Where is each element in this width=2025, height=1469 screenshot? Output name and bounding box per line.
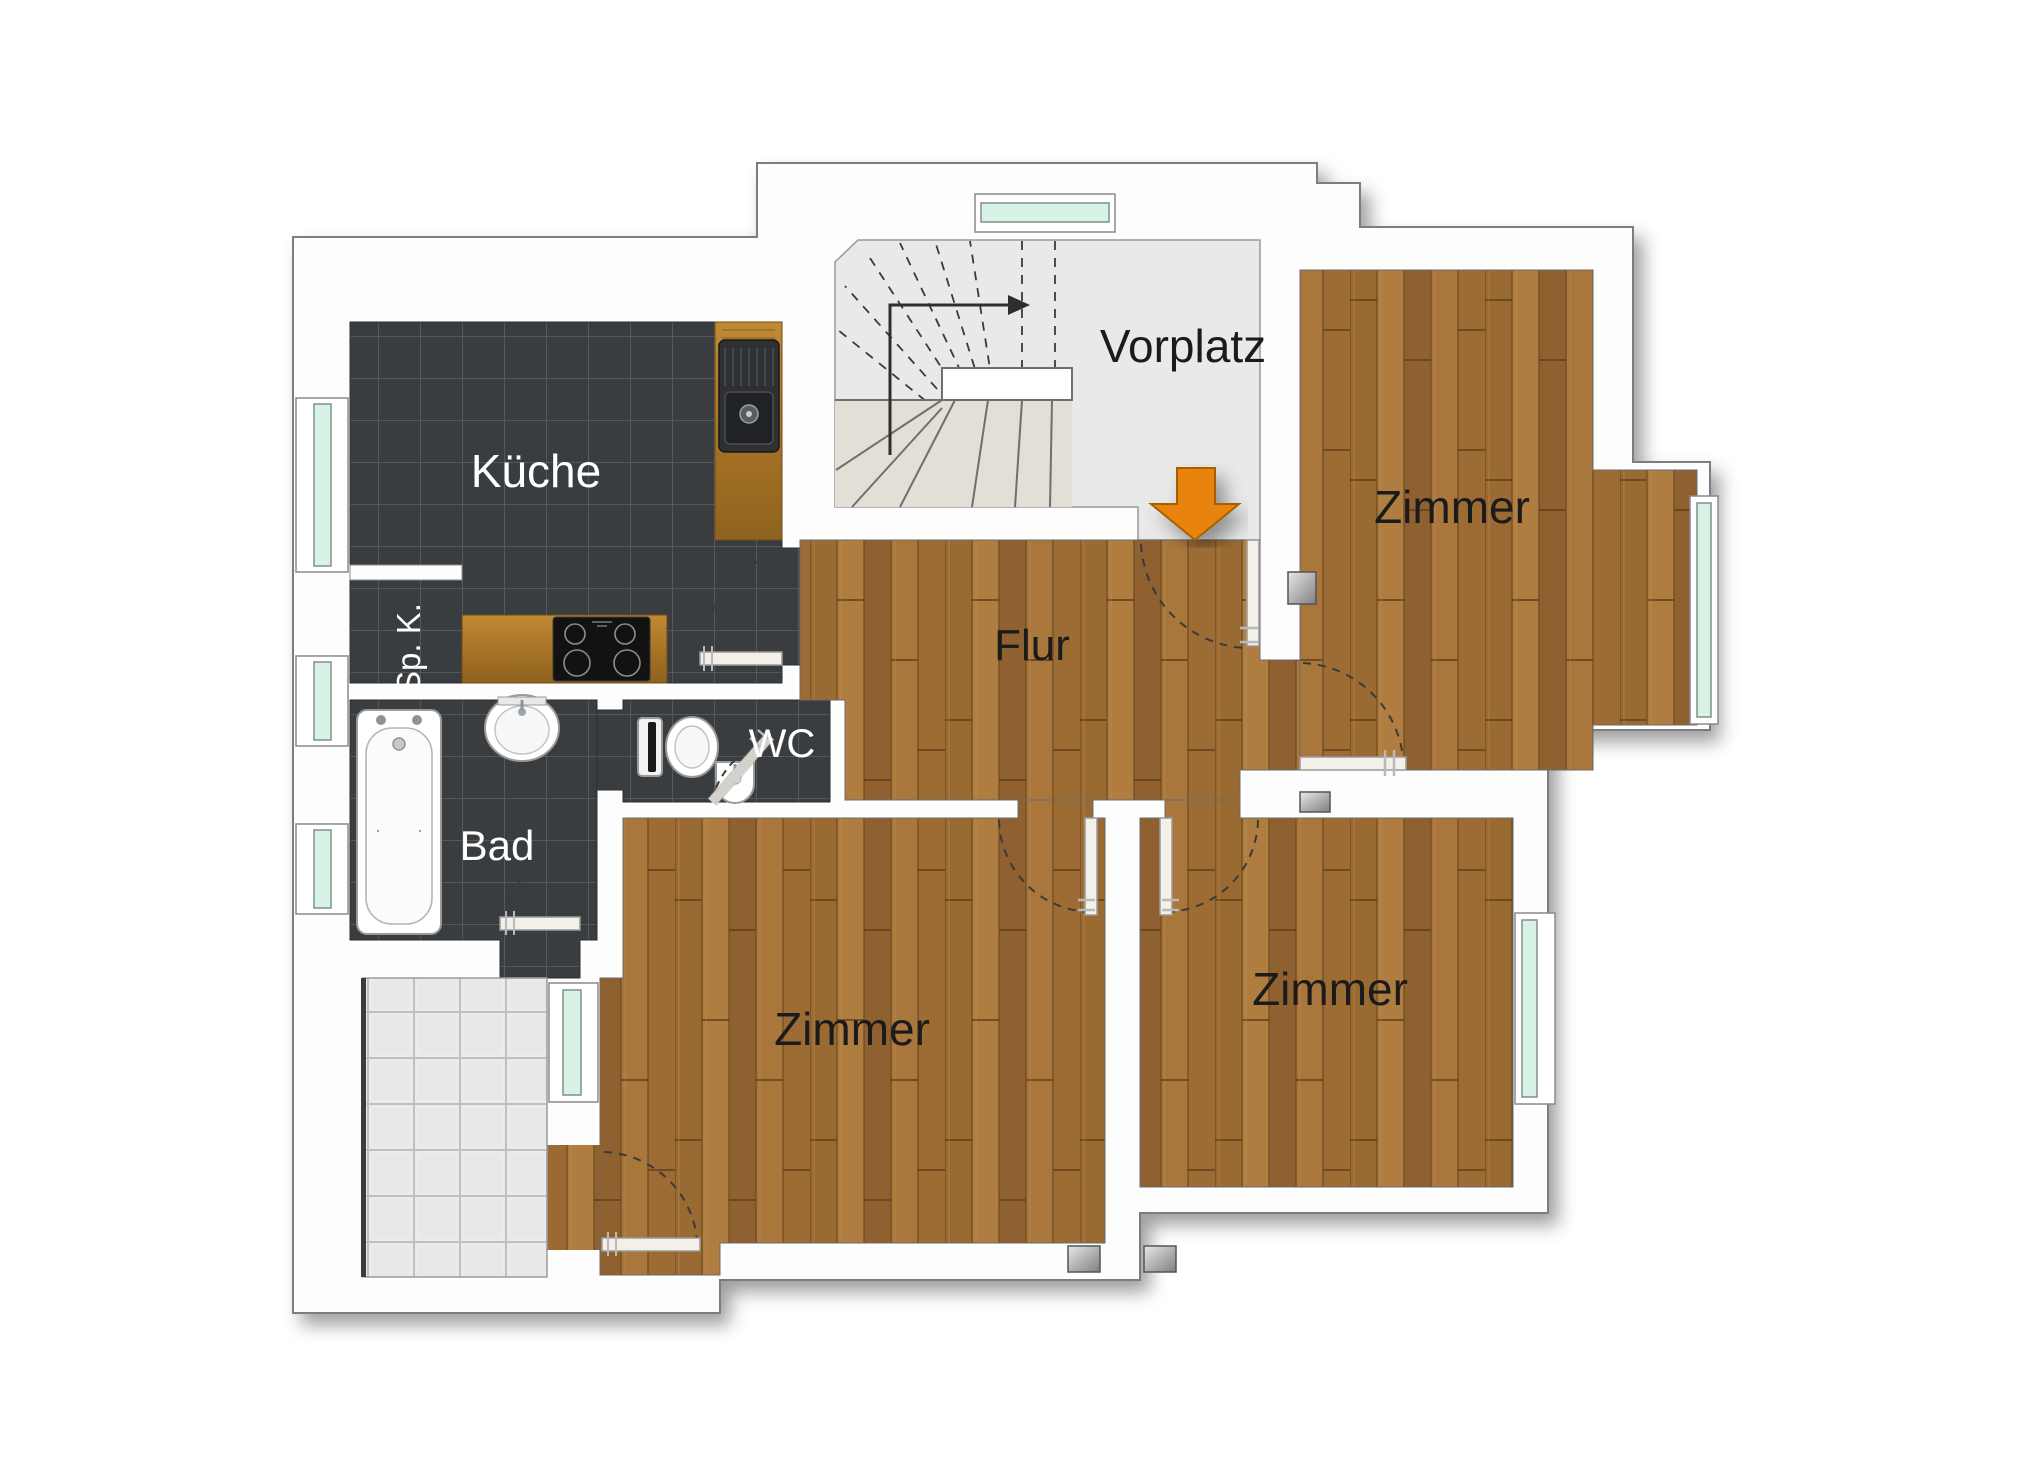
washbasin-icon bbox=[485, 695, 559, 761]
flur-floor bbox=[800, 540, 1300, 800]
label-zimmer-top-right: Zimmer bbox=[1374, 481, 1530, 533]
kitchen-counter bbox=[715, 322, 782, 540]
stair-landing bbox=[942, 368, 1072, 400]
wall-vent-left bbox=[1068, 1246, 1100, 1272]
label-spk: Sp. K. bbox=[390, 603, 427, 693]
window-zimmer-bottom-right bbox=[1515, 913, 1555, 1104]
terrace-parapet-line bbox=[361, 978, 366, 1277]
wall-shaft-1 bbox=[1288, 572, 1316, 604]
label-bad: Bad bbox=[460, 822, 535, 869]
label-vorplatz: Vorplatz bbox=[1100, 320, 1266, 372]
window-terrace-door bbox=[549, 983, 598, 1102]
label-flur: Flur bbox=[994, 621, 1070, 670]
wall-vent-right bbox=[1144, 1246, 1176, 1272]
terrace-door-floor-patch bbox=[547, 1145, 600, 1250]
wall-shaft-2 bbox=[1300, 792, 1330, 812]
cooktop-icon bbox=[553, 617, 650, 681]
floorplan-page: Küche Sp. K. Bad WC Vorplatz Flur Zimmer… bbox=[0, 0, 2025, 1469]
window-vorplatz bbox=[975, 194, 1115, 232]
cooktop-counter bbox=[462, 615, 667, 683]
stair-lower-flight bbox=[835, 400, 1072, 507]
spk-wall-stub bbox=[350, 565, 462, 580]
label-kueche: Küche bbox=[471, 445, 601, 497]
toilet-icon bbox=[638, 717, 718, 777]
terrace-floor bbox=[363, 978, 547, 1277]
label-wc: WC bbox=[749, 722, 816, 766]
window-bay bbox=[1690, 496, 1718, 724]
window-spk bbox=[296, 656, 348, 746]
label-zimmer-bottom-left: Zimmer bbox=[774, 1003, 930, 1055]
kitchen-sink-icon bbox=[719, 340, 779, 452]
bathtub-icon bbox=[357, 710, 441, 934]
label-zimmer-bottom-right: Zimmer bbox=[1252, 963, 1408, 1015]
window-bad bbox=[296, 824, 348, 914]
window-kueche bbox=[296, 398, 348, 572]
floorplan-svg: Küche Sp. K. Bad WC Vorplatz Flur Zimmer… bbox=[0, 0, 2025, 1469]
